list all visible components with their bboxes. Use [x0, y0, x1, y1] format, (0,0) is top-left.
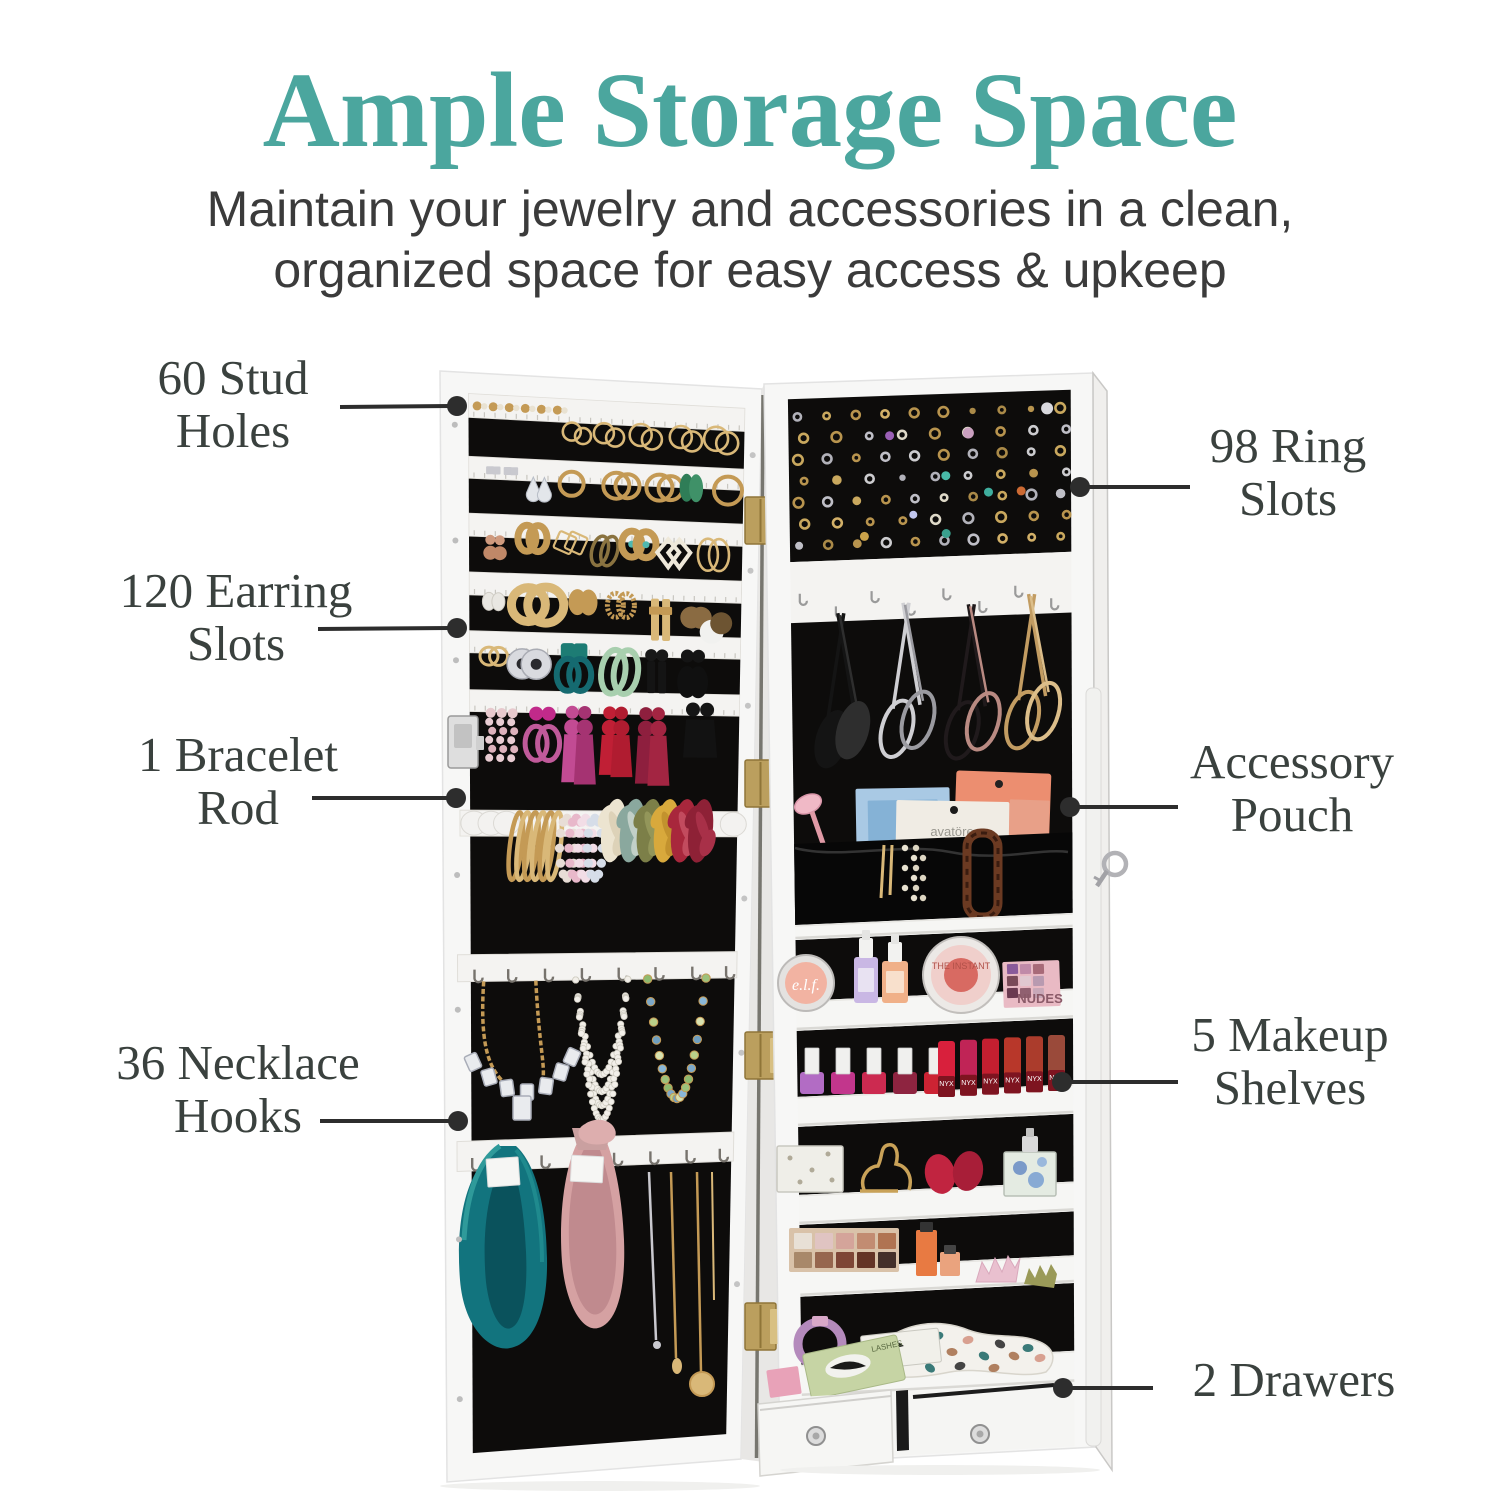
- svg-text:THE INSTANT: THE INSTANT: [932, 961, 991, 971]
- svg-text:Pouch: Pouch: [1231, 787, 1354, 842]
- svg-text:Shelves: Shelves: [1214, 1060, 1366, 1115]
- svg-text:NYX: NYX: [1027, 1076, 1042, 1083]
- svg-text:Ample Storage Space: Ample Storage Space: [263, 52, 1238, 170]
- svg-text:Slots: Slots: [1239, 471, 1337, 526]
- svg-text:NYX: NYX: [939, 1081, 954, 1088]
- svg-text:2 Drawers: 2 Drawers: [1193, 1352, 1396, 1407]
- svg-text:98 Ring: 98 Ring: [1210, 418, 1367, 473]
- svg-text:60 Stud: 60 Stud: [157, 350, 308, 405]
- svg-text:Slots: Slots: [187, 616, 285, 671]
- svg-text:Holes: Holes: [176, 403, 290, 458]
- svg-text:NUDES: NUDES: [1017, 991, 1063, 1006]
- svg-text:Maintain your jewelry and acce: Maintain your jewelry and accessories in…: [207, 181, 1294, 237]
- svg-text:NYX: NYX: [1005, 1077, 1020, 1084]
- svg-text:Hooks: Hooks: [174, 1088, 302, 1143]
- svg-text:NYX: NYX: [961, 1080, 976, 1087]
- svg-text:5 Makeup: 5 Makeup: [1191, 1007, 1388, 1062]
- svg-text:NYX: NYX: [983, 1079, 998, 1086]
- svg-text:36 Necklace: 36 Necklace: [116, 1035, 360, 1090]
- svg-text:Rod: Rod: [197, 780, 279, 835]
- svg-text:Accessory: Accessory: [1190, 734, 1395, 789]
- svg-text:1 Bracelet: 1 Bracelet: [138, 727, 338, 782]
- svg-text:organized space for easy acces: organized space for easy access & upkeep: [273, 242, 1226, 298]
- svg-text:120 Earring: 120 Earring: [120, 563, 353, 618]
- svg-text:e.l.f.: e.l.f.: [792, 977, 820, 994]
